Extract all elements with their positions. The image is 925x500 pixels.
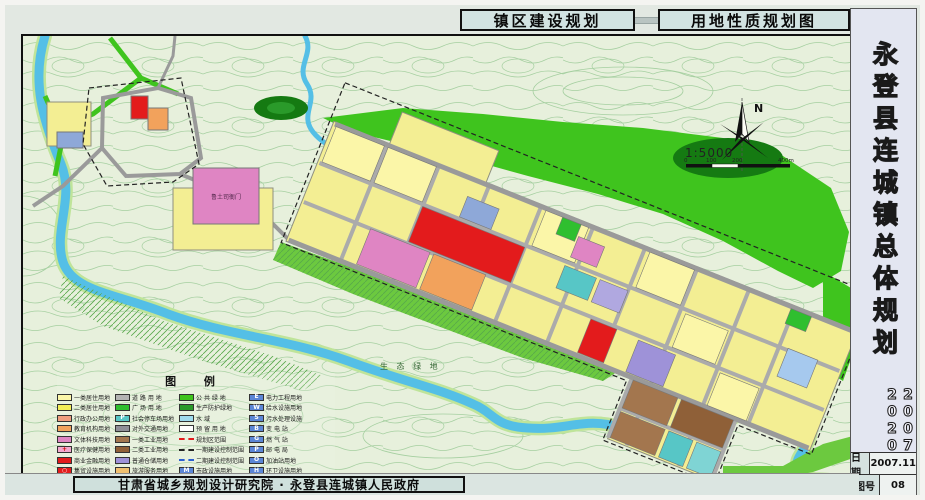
legend-swatch: G [249,436,264,443]
legend-swatch [115,436,130,443]
legend-line-sample [179,449,194,451]
legend-item: 规划区范围 [179,434,244,445]
legend-item-label: 加油站用地 [266,456,296,465]
legend-item: 对外交通用地 [115,424,174,435]
legend-column: E电力工程用地W给水设施用地S污水处理设施B变 电 站G燃 气 站P邮 电 局O… [249,392,314,484]
legend-swatch: E [249,394,264,401]
legend-swatch [57,404,72,411]
legend-swatch [115,394,130,401]
legend-item-label: 一类居住用地 [74,393,110,402]
credit-box: 甘肃省城乡规划设计研究院 · 永登县连城镇人民政府 [73,476,465,493]
legend-swatch: W [249,404,264,411]
scale-tick: 0 [684,158,688,164]
legend-column: 公 共 绿 地生产防护绿地水 域预 留 用 地规划区范围一期建设控制范围二期建设… [179,392,244,476]
legend-item: P邮 电 局 [249,445,314,456]
legend-item-label: 二类居住用地 [74,403,110,412]
legend-item: 商业金融用地 [57,455,110,466]
legend-item-label: 教育机构用地 [74,424,110,433]
legend-swatch [179,457,194,464]
legend-item: 教育机构用地 [57,424,110,435]
legend-item: S污水处理设施 [249,413,314,424]
plan-title-vertical: 永登县连城镇总体规划 [851,41,916,381]
legend-symbol-icon: P [120,415,124,421]
legend-item: B变 电 站 [249,424,314,435]
legend-item-label: 商业金融用地 [74,456,110,465]
legend-item-label: 公 共 绿 地 [196,393,226,402]
sheet-footer: 甘肃省城乡规划设计研究院 · 永登县连城镇人民政府 [5,473,859,495]
legend-item-label: 预 留 用 地 [196,424,226,433]
info-row-number: 图号 08 [851,475,916,496]
map-canvas: 鲁土司衙门 [21,34,857,484]
legend: 图 例 一类居住用地二类居住用地行政办公用地教育机构用地文体科技用地+医疗保健用… [57,373,335,484]
title-construction-plan: 镇区建设规划 [460,9,635,31]
legend-symbol-icon: E [254,394,258,400]
legend-swatch [57,436,72,443]
legend-item-label: 变 电 站 [266,424,288,433]
legend-item: 文体科技用地 [57,434,110,445]
legend-item: 二类居住用地 [57,403,110,414]
legend-item-label: 水 域 [196,414,210,423]
legend-symbol-icon: W [253,405,260,411]
legend-swatch: P [115,415,130,422]
legend-item: 一类工业用地 [115,434,174,445]
legend-item: 普通仓储用地 [115,455,174,466]
legend-item-label: 社会停车场用地 [132,414,174,423]
legend-swatch [57,415,72,422]
title-landuse-map: 用地性质规划图 [658,9,850,31]
parcel-education-west [148,108,168,130]
legend-item: 预 留 用 地 [179,424,244,435]
legend-column: 道 路 用 地广 场 用 地P社会停车场用地对外交通用地一类工业用地二类工业用地… [115,392,174,476]
legend-swatch: O [249,457,264,464]
legend-item-label: 生产防护绿地 [196,403,232,412]
legend-item: 二期建设控制范围 [179,455,244,466]
legend-item-label: 规划区范围 [196,435,226,444]
legend-swatch [179,394,194,401]
date-label: 日期 [851,453,870,474]
legend-item-label: 二期建设控制范围 [196,456,244,465]
scale-tick: 100 [706,158,717,164]
legend-item-label: 污水处理设施 [266,414,302,423]
parcel-commercial-west [131,96,148,119]
legend-item-label: 对外交通用地 [132,424,168,433]
legend-item: 水 域 [179,413,244,424]
legend-item: E电力工程用地 [249,392,314,403]
legend-item: P社会停车场用地 [115,413,174,424]
legend-item-label: 行政办公用地 [74,414,110,423]
legend-item-label: 广 场 用 地 [132,403,162,412]
legend-item-label: 医疗保健用地 [74,445,110,454]
legend-line-sample [179,438,194,440]
legend-swatch [57,425,72,432]
legend-symbol-icon: + [62,447,67,453]
legend-item: O加油站用地 [249,455,314,466]
legend-swatch: S [249,415,264,422]
legend-columns: 一类居住用地二类居住用地行政办公用地教育机构用地文体科技用地+医疗保健用地商业金… [57,392,335,484]
legend-item-label: 一期建设控制范围 [196,445,244,454]
legend-swatch [115,404,130,411]
eco-green-label: 生 态 绿 地 [380,361,441,371]
legend-symbol-icon: B [254,426,259,432]
legend-item-label: 邮 电 局 [266,445,288,454]
legend-symbol-icon: O [254,457,259,463]
legend-item: G燃 气 站 [249,434,314,445]
legend-item: 一期建设控制范围 [179,445,244,456]
legend-item: 行政办公用地 [57,413,110,424]
legend-item: 二类工业用地 [115,445,174,456]
legend-item-label: 文体科技用地 [74,435,110,444]
legend-swatch [179,415,194,422]
legend-swatch: P [249,446,264,453]
legend-item: 道 路 用 地 [115,392,174,403]
legend-swatch [179,404,194,411]
legend-symbol-icon: G [254,436,259,442]
legend-swatch: + [57,446,72,453]
legend-swatch [179,446,194,453]
legend-item-label: 一类工业用地 [132,435,168,444]
sheet-info-table: 日期 2007.11 图号 08 [851,452,916,496]
legend-item-label: 燃 气 站 [266,435,288,444]
legend-title: 图 例 [57,373,335,389]
legend-column: 一类居住用地二类居住用地行政办公用地教育机构用地文体科技用地+医疗保健用地商业金… [57,392,110,476]
legend-item-label: 普通仓储用地 [132,456,168,465]
dark-forest-2b [267,102,295,114]
legend-item: 一类居住用地 [57,392,110,403]
legend-item: 生产防护绿地 [179,403,244,414]
legend-swatch [115,457,130,464]
historic-site-label: 鲁土司衙门 [211,193,241,201]
legend-item-label: 二类工业用地 [132,445,168,454]
scale-tick: 200 [732,158,743,164]
legend-item: W给水设施用地 [249,403,314,414]
legend-swatch [179,425,194,432]
scale-tick: 400m [778,158,794,164]
north-label: N [754,102,763,115]
legend-swatch [57,457,72,464]
parcel-blue-west [57,132,83,148]
legend-item: 广 场 用 地 [115,403,174,414]
legend-item-label: 道 路 用 地 [132,393,162,402]
legend-item-label: 电力工程用地 [266,393,302,402]
legend-item: +医疗保健用地 [57,445,110,456]
legend-swatch [115,425,130,432]
legend-symbol-icon: S [254,415,258,421]
info-row-date: 日期 2007.11 [851,453,916,475]
plan-sheet: 镇区建设规划 用地性质规划图 [0,0,925,500]
legend-line-sample [179,459,194,461]
date-value: 2007.11 [870,453,916,474]
legend-swatch [179,436,194,443]
legend-swatch [57,394,72,401]
legend-swatch: B [249,425,264,432]
sheet-number-value: 08 [880,475,916,496]
legend-item: 公 共 绿 地 [179,392,244,403]
legend-item-label: 给水设施用地 [266,403,302,412]
legend-swatch [115,446,130,453]
sheet-sidebar: 永登县连城镇总体规划 2007—2020 日期 2007.11 图号 08 [850,8,917,497]
legend-symbol-icon: P [254,447,258,453]
